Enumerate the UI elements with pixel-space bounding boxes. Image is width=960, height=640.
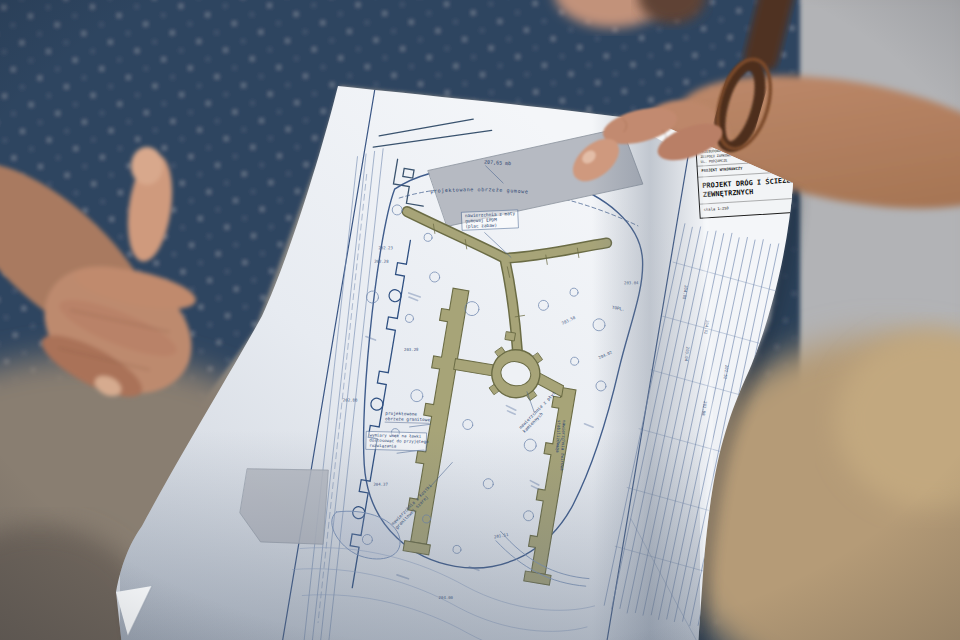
photo-canvas: projektowane obrzeże gumowe nawierzchnia… [0, 0, 960, 640]
photo-scene: projektowane obrzeże gumowe nawierzchnia… [0, 0, 960, 640]
vignette [0, 0, 960, 640]
